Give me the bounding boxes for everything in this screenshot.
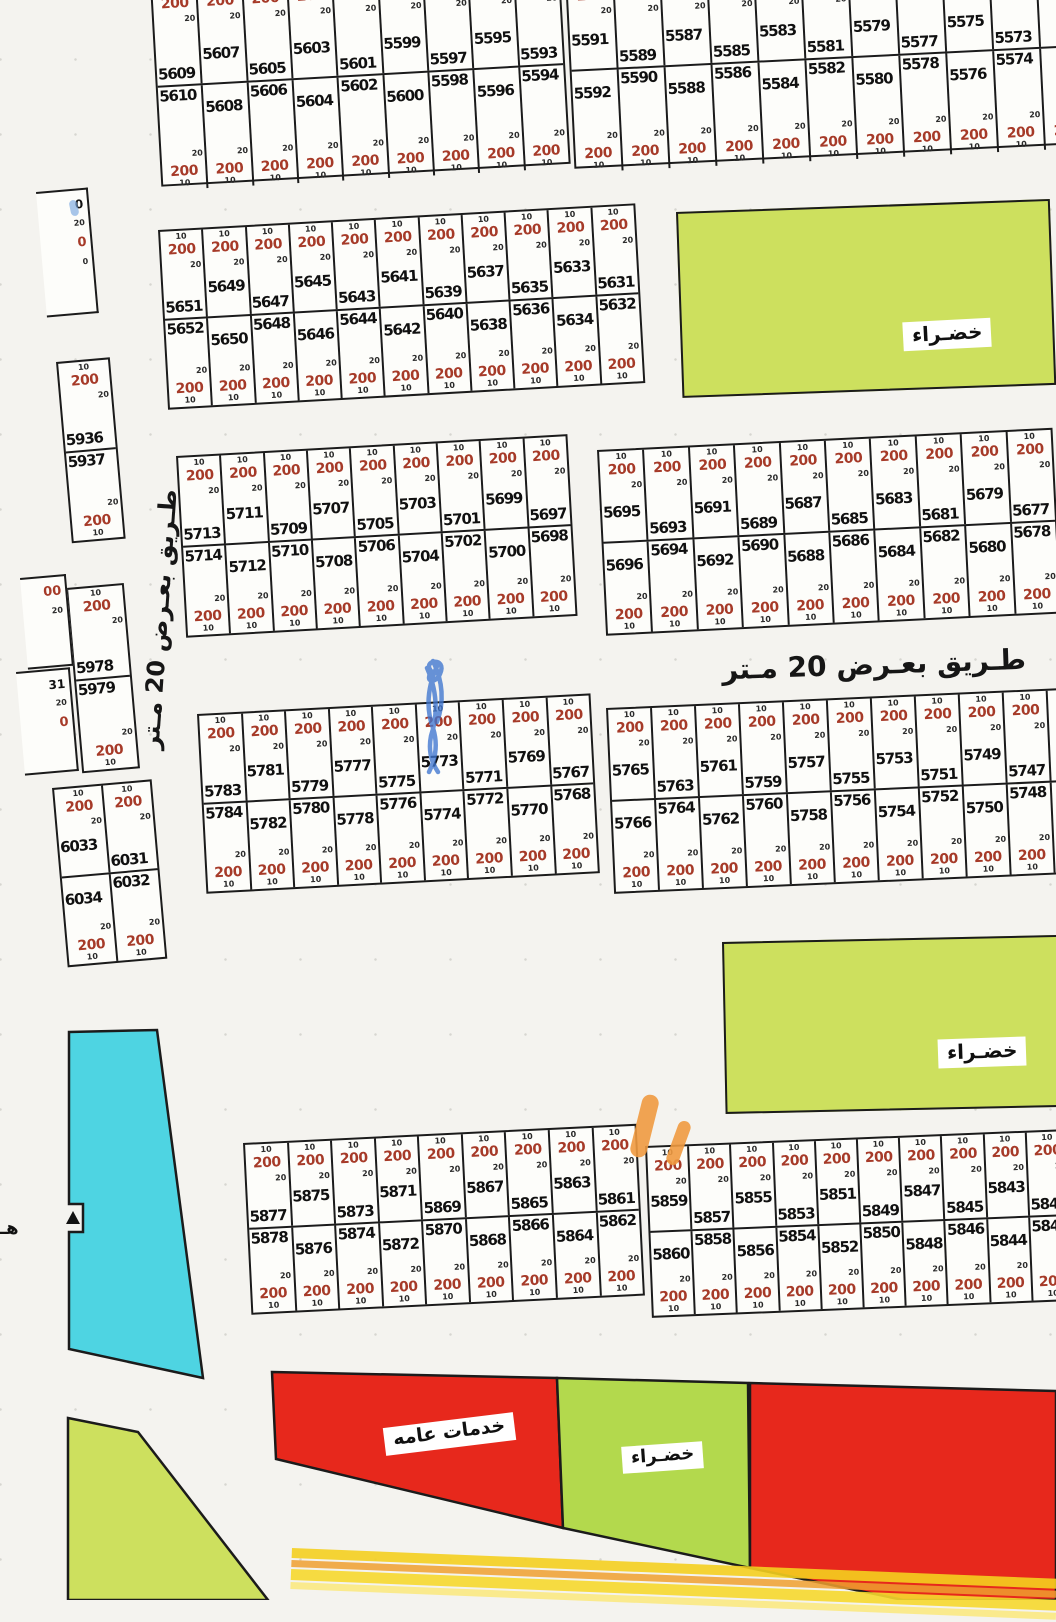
area-value: 200	[912, 1279, 940, 1294]
plot-number: 5783	[204, 783, 242, 800]
plot-cell-5774: 57742020010	[421, 791, 469, 880]
plot-number: 5937	[67, 452, 105, 470]
plot-number: 5709	[270, 521, 308, 538]
plot-number: 5651	[165, 299, 203, 316]
area-value: 200	[796, 598, 824, 613]
area-value: 200	[842, 856, 870, 871]
plot-cell-5766: 57662020010	[612, 800, 660, 892]
area-value: 200	[453, 594, 481, 610]
area-value: 200	[521, 361, 549, 377]
area-value: 200	[710, 861, 738, 876]
plot-number: 584	[1031, 1218, 1056, 1234]
area-value: 200	[923, 707, 951, 722]
plot-number: 5650	[210, 331, 248, 348]
plot-number: 5747	[1008, 763, 1046, 780]
plot-cell-5777: 10200205777	[330, 707, 378, 796]
plot-cell-5686: 56862020010	[830, 530, 880, 622]
plot-cell-5854: 58542020010	[777, 1226, 823, 1311]
plot-cell-5705: 10200205705	[351, 446, 399, 536]
plot-block-E: 1020020569510200205693102002056911020020…	[597, 428, 1056, 636]
area-value: 200	[1011, 703, 1039, 718]
plot-cell-5760: 57602020010	[744, 794, 792, 886]
plot-cell-5851: 10200205851	[816, 1139, 862, 1224]
area-value: 200	[1023, 587, 1051, 602]
area-value: 200	[402, 456, 430, 472]
plot-cell-5604: 56042020010	[294, 78, 345, 183]
plot-number: 5752	[921, 789, 959, 806]
area-value: 200	[960, 128, 988, 143]
area-value: 200	[65, 799, 94, 815]
plot-cell-5864: 58642020010	[554, 1213, 602, 1298]
green-bottom-label: خضـراء	[621, 1441, 704, 1473]
plot-number: 5871	[379, 1184, 417, 1201]
area-value: 200	[511, 710, 539, 725]
area-value: 200	[391, 369, 419, 385]
plot-cell-5855: 10200205855	[731, 1143, 777, 1228]
area-value: 200	[315, 461, 343, 477]
plot-number: 5759	[744, 774, 782, 791]
area-value: 200	[607, 357, 635, 373]
plot-cell-5780: 57802020010	[291, 798, 339, 887]
plot-cell-5765: 10200205765	[608, 708, 656, 800]
plot-number: 584	[1030, 1196, 1056, 1212]
plot-number: 5678	[1013, 524, 1051, 541]
plot-cell-5875: 10200205875	[289, 1141, 337, 1226]
plot-number: 5595	[473, 30, 511, 47]
plot-number: 5777	[333, 758, 371, 775]
plot-number: 5588	[667, 80, 705, 97]
plot-cell-5870: 58702020010	[423, 1219, 471, 1304]
plot-number: 5851	[819, 1187, 857, 1203]
plot-cell-5937: 59372020010	[66, 449, 123, 541]
plot-cell-5979: 59792020010	[76, 677, 138, 771]
plot-number: 5652	[166, 321, 204, 338]
plot-cell-5868: 58682020010	[467, 1217, 515, 1302]
plot-cell-5857: 10200205857	[689, 1145, 735, 1230]
plot-cell-5590: 55902020010	[619, 67, 671, 170]
plot-cell-5632: 56322020010	[597, 294, 643, 383]
plot-cell-5704: 57042020010	[399, 533, 447, 623]
area-value: 200	[262, 376, 290, 392]
plot-cell-5781: 10200205781	[243, 711, 291, 800]
plot-number: 5753	[875, 751, 913, 768]
plot-number: 5936	[65, 430, 103, 448]
area-value: 200	[348, 371, 376, 387]
plot-cell-5678: 56782020010	[1012, 522, 1056, 614]
plot-cell-5649: 10200205649	[203, 227, 251, 316]
plot-cell-5693: 10200205693	[644, 447, 694, 539]
plot-cell-5784: 57842020010	[204, 802, 252, 891]
plot-cell-5772: 57722020010	[465, 789, 513, 878]
area-value: 200	[388, 856, 416, 871]
plot-cell-5782: 57822020010	[247, 800, 295, 889]
plot-number: 5877	[249, 1208, 287, 1225]
plot-cell-5712: 57122020010	[226, 543, 274, 633]
plot-cell-5700: 57002020010	[486, 528, 534, 618]
plot-number: 5689	[740, 515, 778, 532]
area-value: 200	[555, 708, 583, 723]
plot-cell-5596: 55962020010	[475, 67, 526, 172]
plot-number: 5695	[603, 504, 641, 521]
plot-cell-5602: 56022020010	[339, 75, 390, 180]
plot-number: 5637	[466, 264, 504, 281]
plot-cell-5689: 10200205689	[735, 443, 785, 535]
area-value: 200	[168, 242, 196, 258]
plot-cell-5683: 10200205683	[871, 436, 921, 528]
plot-number: 5872	[382, 1237, 420, 1254]
area-value: 200	[792, 713, 820, 728]
area-value: 200	[557, 1140, 585, 1155]
plot-number: 5645	[294, 273, 332, 290]
plot-cell-5679: 10200205679	[962, 432, 1012, 524]
area-value: 200	[798, 858, 826, 873]
area-value: 200	[748, 715, 776, 730]
plot-row: 1020020603310200206031	[54, 781, 157, 878]
plot-cell-5647: 10200205647	[247, 225, 295, 314]
plot-cell-5874: 58742020010	[336, 1223, 384, 1308]
area-value: 200	[836, 711, 864, 726]
plot-cell-5783: 10200205783	[199, 714, 247, 803]
plot-block-D: 1020020571310200205711102002057091020020…	[176, 434, 578, 638]
plot-number: 5848	[905, 1236, 943, 1252]
area-value: 200	[772, 137, 800, 152]
plot-number: 5874	[337, 1226, 375, 1243]
plot-number: 5856	[736, 1243, 774, 1259]
plot-number: 5852	[821, 1240, 859, 1256]
plot-cell-5708: 57082020010	[313, 538, 361, 628]
area-value: 200	[659, 1289, 687, 1304]
plot-number: 5597	[429, 50, 467, 67]
plot-block-G: 1020020576510200205763102002057611020020…	[606, 687, 1056, 894]
plot-cell-5631: 10200205631	[592, 205, 638, 294]
plot-cell-5587: 10200205587	[661, 0, 712, 65]
plot-number: 5576	[949, 67, 987, 84]
plot-cell-6033: 10200206033	[54, 786, 110, 877]
plot-number: 6033	[60, 837, 98, 855]
plot-cell-5597: 10200205597	[424, 0, 475, 71]
plot-number: 5696	[605, 557, 643, 574]
plot-number: 5585	[713, 43, 751, 60]
plot-block-F: 1020020578310200205781102002057791020020…	[197, 693, 600, 893]
plot-number: 5776	[379, 796, 417, 813]
plot-number: 5778	[336, 811, 374, 828]
area-value: 200	[660, 605, 688, 620]
area-value: 200	[70, 372, 99, 388]
area-value: 200	[323, 601, 351, 617]
plot-number: 5765	[611, 762, 649, 779]
plot-number: 5705	[356, 516, 394, 533]
plot-cell-5750: 57502020010	[964, 785, 1012, 877]
plot-cell-5645: 10200205645	[290, 222, 338, 311]
plot-cell-5865: 10200205865	[506, 1130, 554, 1215]
plot-cell-5652: 56522020010	[165, 318, 213, 407]
area-value: 200	[789, 453, 817, 468]
area-value: 200	[366, 599, 394, 615]
area-value: 200	[949, 1147, 977, 1162]
plot-cell-5650: 56502020010	[208, 316, 256, 405]
plot-cell-5847: 10200205847	[900, 1136, 946, 1221]
plot-number: 5685	[830, 511, 868, 528]
plot-row: 10200205936	[58, 359, 116, 453]
area-value: 200	[970, 444, 998, 459]
area-value: 200	[206, 0, 234, 9]
plot-number: 5855	[734, 1190, 772, 1206]
plot-cell-5852: 58522020010	[819, 1224, 865, 1309]
plot-number: 5640	[425, 306, 463, 323]
area-value: 200	[704, 717, 732, 732]
plot-cell-5848: 58482020010	[904, 1221, 950, 1306]
area-value: 200	[819, 134, 847, 149]
area-value: 200	[841, 596, 869, 611]
plot-number: 5868	[469, 1232, 507, 1249]
area-value: 200	[907, 1148, 935, 1163]
plot-cell-5843: 10200205843	[984, 1133, 1030, 1218]
area-value: 200	[701, 1288, 729, 1303]
plot-number: 5858	[694, 1232, 732, 1248]
area-value: 200	[475, 851, 503, 866]
area-value: 200	[340, 1151, 368, 1166]
plot-number: 5593	[520, 45, 558, 62]
area-value: 200	[751, 600, 779, 615]
plot-number: 5843	[987, 1180, 1025, 1196]
plot-cell-5691: 10200205691	[690, 445, 740, 537]
area-value: 200	[698, 458, 726, 473]
plot-number: 5599	[383, 35, 421, 52]
area-value: 200	[302, 1284, 330, 1299]
area-value: 200	[616, 720, 644, 735]
plot-number: 5591	[571, 32, 609, 49]
plot-number: 5761	[699, 758, 737, 775]
plot-cell-5681: 10200205681	[917, 434, 967, 526]
plot-number: 5760	[745, 796, 783, 813]
plot-number: 5648	[253, 316, 291, 333]
area-value: 200	[705, 603, 733, 618]
plot-number: 5604	[295, 93, 333, 110]
plot-cell-5769: 10200205769	[504, 698, 552, 787]
area-value: 200	[615, 607, 643, 622]
plot-cell-5701: 10200205701	[438, 441, 486, 531]
plot-cell-5872: 58722020010	[380, 1221, 428, 1306]
plot-number: 5683	[875, 491, 913, 508]
plot-number: 5860	[652, 1246, 690, 1262]
plot-number: 5638	[469, 317, 507, 334]
plot-cell-5643: 10200205643	[333, 220, 381, 309]
area-value: 200	[601, 1138, 629, 1153]
area-value: 200	[1016, 442, 1044, 457]
plot-number: 5646	[297, 326, 335, 343]
plot-number: 5590	[620, 70, 658, 87]
plot-number: 5701	[443, 511, 481, 528]
plot-number: 5607	[202, 45, 240, 62]
plot-cell-5751: 10200205751	[916, 695, 964, 787]
plot-number: 5601	[339, 56, 377, 73]
area-value: 200	[434, 366, 462, 382]
area-value: 200	[215, 161, 243, 177]
plot-cell-5688: 56882020010	[785, 533, 835, 625]
plot-number: 5750	[965, 800, 1003, 817]
plot-number: 5684	[877, 544, 915, 561]
area-value: 200	[607, 1269, 635, 1284]
area-value: 200	[834, 451, 862, 466]
plot-number: 5763	[656, 778, 694, 795]
plot-number: 5583	[759, 23, 797, 40]
plot-cell-5849: 10200205849	[858, 1138, 904, 1223]
plot-number: 5854	[778, 1228, 816, 1244]
plot-number: 5693	[649, 520, 687, 537]
plot-cell-5594: 55942020010	[520, 65, 569, 170]
area-value: 200	[337, 719, 365, 734]
area-value: 200	[383, 1149, 411, 1164]
plot-block-B: 1020020559110200205589102002055871020020…	[565, 0, 1056, 169]
plot-cell-5755: 10200205755	[828, 698, 876, 790]
area-value: 200	[95, 743, 124, 759]
area-value: 200	[660, 718, 688, 733]
plot-cell-5867: 10200205867	[463, 1132, 511, 1217]
area-value: 200	[623, 0, 651, 1]
plot-number: 5707	[312, 500, 350, 517]
area-value: 200	[126, 933, 155, 949]
area-value: 200	[866, 132, 894, 147]
area-value: 200	[342, 0, 370, 1]
area-value: 200	[520, 1273, 548, 1288]
plot-cell-5703: 10200205703	[394, 443, 442, 533]
plot-number: 5873	[336, 1204, 374, 1221]
area-value: 200	[297, 235, 325, 251]
plot-cell-5866: 58662020010	[510, 1215, 558, 1300]
area-value: 200	[584, 146, 612, 161]
area-value: 200	[253, 1155, 281, 1170]
plot-cell-5642: 56422020010	[381, 306, 429, 395]
plot-number: 5610	[159, 88, 197, 105]
area-value: 200	[564, 359, 592, 375]
plot-number: 5756	[833, 793, 871, 810]
plot-number: 5702	[444, 533, 482, 550]
plot-number: 5644	[339, 311, 377, 328]
area-value: 200	[631, 144, 659, 159]
plot-number: 5770	[510, 802, 548, 819]
area-value: 200	[82, 598, 111, 614]
plot-cell-5680: 56802020010	[966, 524, 1016, 616]
plot-row: 10200205978	[68, 585, 130, 681]
plot-cell-5633: 10200205633	[549, 208, 597, 297]
plot-number: 5582	[808, 60, 846, 77]
plot-number: 5772	[466, 791, 504, 808]
plot-cell-5651: 10200205651	[160, 229, 208, 318]
plot-number: 5679	[966, 486, 1004, 503]
plot-cell-5850: 58502020010	[861, 1223, 907, 1308]
plot-cell-5578: 55782020010	[900, 53, 952, 156]
plot-number: 5600	[386, 88, 424, 105]
plot-cell-5749: 10200205749	[960, 693, 1008, 785]
area-value: 200	[974, 850, 1002, 865]
area-value: 200	[280, 604, 308, 620]
plot-number: 5853	[777, 1206, 815, 1222]
plot-cell-5862: 58622020010	[597, 1211, 643, 1296]
plot-fragment: 02000	[36, 187, 99, 317]
plot-cell-5593: 10200205593	[514, 0, 563, 65]
plot-cell-5978: 10200205978	[68, 585, 130, 679]
plot-cell-5759: 10200205759	[740, 702, 788, 794]
plot-number: 5690	[741, 537, 779, 554]
plot-number: 5865	[510, 1195, 548, 1212]
plot-cell-5697: 10200205697	[524, 436, 570, 526]
area-value: 200	[193, 609, 221, 625]
area-value: 200	[296, 1153, 324, 1168]
plot-number: 5859	[650, 1193, 688, 1209]
plot-number: 5643	[338, 289, 376, 306]
plot-cell-5856: 58562020010	[735, 1228, 781, 1313]
plot-cell-5610: 56102020010	[158, 85, 209, 190]
plot-block-C: 1020020565110200205649102002056471020020…	[158, 203, 645, 409]
area-value: 200	[170, 164, 198, 180]
plot-cell-5711: 10200205711	[221, 453, 269, 543]
plot-number: 5755	[832, 771, 870, 788]
plot-cell-5761: 10200205761	[696, 704, 744, 796]
plot-cell-5582: 55822020010	[806, 58, 858, 161]
plot-cell-584: 1020020584	[1027, 1131, 1056, 1216]
plot-number: 5680	[968, 539, 1006, 556]
plot-number: 6032	[112, 873, 150, 891]
plot-number: 5631	[597, 275, 635, 292]
area-value: 200	[622, 865, 650, 880]
plot-number: 5978	[75, 658, 113, 676]
plot-number: 5710	[271, 543, 309, 560]
green-top-label: خضـراء	[902, 318, 992, 352]
plot-cell-5635: 10200205635	[506, 210, 554, 299]
plot-number: 5844	[989, 1233, 1027, 1249]
plot-cell-5713: 10200205713	[178, 455, 226, 545]
plot-block-I: 1020020585910200205857102002058551020020…	[645, 1129, 1056, 1318]
plot-number: 5574	[995, 51, 1033, 68]
area-value: 200	[477, 1275, 505, 1290]
plot-number: 5578	[901, 56, 939, 73]
plot-number: 6031	[110, 851, 148, 869]
plot-number: 5575	[946, 14, 984, 31]
plot-cell-5599: 10200205599	[378, 0, 429, 73]
plot-cell-5583: 10200205583	[755, 0, 806, 61]
plot-cell-5871: 10200205871	[376, 1136, 424, 1221]
plot-cell-5592: 55922020010	[572, 69, 624, 172]
area-value: 200	[340, 232, 368, 248]
plot-cell-5858: 58582020010	[693, 1229, 739, 1314]
plot-cell-5692: 56922020010	[694, 537, 744, 629]
plot-number: 5784	[205, 805, 243, 822]
plot-number: 5757	[787, 755, 825, 772]
plot-number: 5774	[423, 806, 461, 823]
area-value: 200	[532, 143, 560, 159]
area-value: 200	[351, 154, 379, 170]
plot-number: 5754	[878, 804, 916, 821]
area-value: 200	[744, 455, 772, 470]
plot-number: 5587	[665, 27, 703, 44]
plot-number: 5867	[466, 1179, 504, 1196]
plot-cell-5600: 56002020010	[384, 73, 435, 178]
area-value: 200	[359, 458, 387, 474]
area-value: 200	[1033, 1143, 1056, 1158]
plot-number: 5584	[761, 76, 799, 93]
area-value: 200	[1018, 848, 1046, 863]
plot-number: 5677	[1012, 502, 1050, 519]
plot-number: 5782	[249, 815, 287, 832]
plot-number: 5606	[249, 83, 287, 100]
plot-fragment: 0020	[20, 574, 74, 670]
area-value: 200	[513, 223, 541, 239]
green-mid-label: خضـراء	[938, 1036, 1027, 1068]
area-value: 200	[470, 225, 498, 241]
plot-cell-5644: 56442020010	[338, 309, 386, 398]
area-value: 200	[886, 854, 914, 869]
plot-row: 5860202001058582020010585620200105854202…	[650, 1216, 1056, 1316]
